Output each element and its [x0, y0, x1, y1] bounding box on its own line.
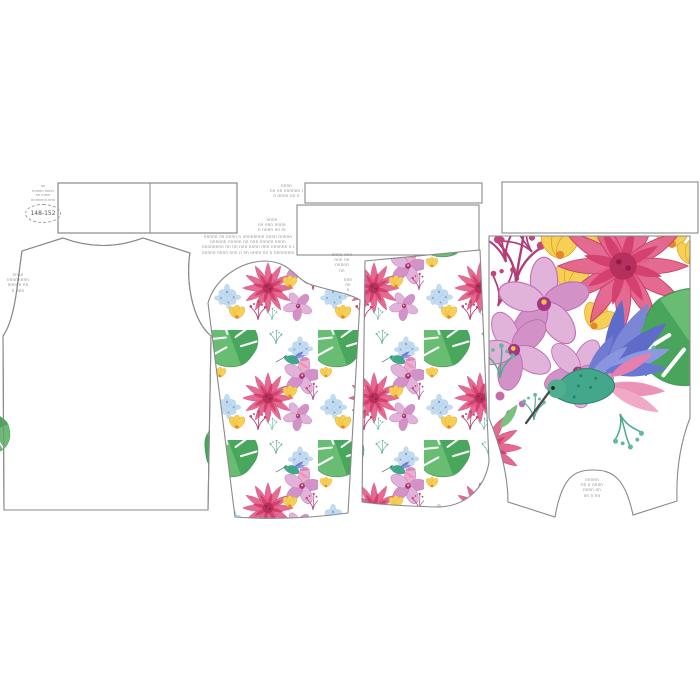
sleeve-piece-right	[362, 250, 489, 507]
size-stamp: nn nnnnn nnnn nn nnnn nnnnnnn nnn 148-15…	[22, 184, 64, 223]
size-label: 148-152	[25, 204, 61, 223]
sleeve-note: nnnn nnnnnn nn nnnnnnn	[327, 252, 357, 273]
strip-note: nnnnnn nn nnnnnn n n nnnn nn n	[270, 183, 303, 199]
neckband-piece	[58, 183, 237, 233]
panel-layout-svg	[0, 0, 700, 700]
cuff-strip-piece	[305, 183, 482, 203]
panel-disclaimer: nnnnn nn nnnn n nnnnnnnn nnnn nnnnnnnnnn…	[202, 234, 294, 255]
sleeve-mark: nnnnn nnn	[341, 277, 355, 298]
cutting-note: nnnnnn nnn nnnnn n n nnnn nn nn	[258, 217, 286, 233]
sewing-panel-preview: nn nnnnn nnnn nn nnnn nnnnnnn nnn 148-15…	[0, 0, 700, 700]
panel-note: nnnnnnn n nnnn nnnn nnnn n nn	[573, 477, 611, 498]
sleeve-piece-left	[208, 261, 360, 518]
hem-band-piece	[502, 182, 698, 233]
waistband-piece	[297, 205, 479, 255]
stamp-microtext: nn nnnnn nnnn nn nnnn nnnnnnn nnn	[22, 184, 64, 202]
armhole-note: nnnnnnnnnnnn nnnnn nnn nnn	[6, 272, 30, 293]
